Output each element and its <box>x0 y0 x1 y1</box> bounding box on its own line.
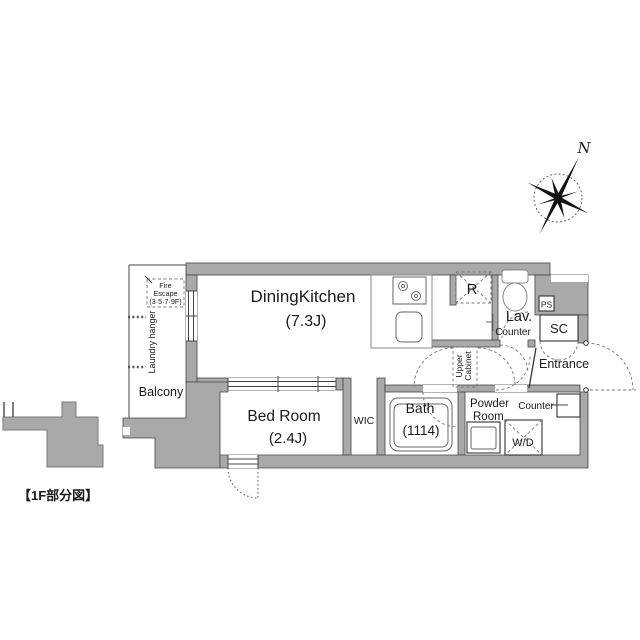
bath-door-gap <box>423 385 457 392</box>
floor-1f-caption: 【1F部分図】 <box>18 488 98 503</box>
washer-dryer-label: W/D <box>512 437 533 449</box>
door-hinge-top <box>584 341 589 346</box>
compass-star <box>528 157 589 234</box>
powder-sink-icon <box>467 422 500 453</box>
bed-ext-door-swing <box>228 468 258 498</box>
dining-kitchen-size: (7.3J) <box>286 313 327 330</box>
wall-hallway <box>385 385 580 392</box>
fire-escape-label-3: (3·5·7·9F) <box>149 297 181 306</box>
powder-counter-label: Counter <box>518 401 554 412</box>
wall-lav-jamb <box>528 340 535 347</box>
lavatory-label: Lav. <box>506 309 532 325</box>
wall-bath-powder <box>458 392 465 455</box>
wic-label: WIC <box>354 415 375 427</box>
wall-wic-right <box>377 378 385 455</box>
compass-icon: N <box>528 139 592 234</box>
fire-escape-leader <box>145 276 152 283</box>
bath-label: Bath <box>406 400 435 416</box>
north-label: N <box>576 139 591 157</box>
bed-room-size: (2.4J) <box>269 430 307 447</box>
floor-1f-shape <box>3 402 103 467</box>
door-hinge-bottom <box>584 388 589 393</box>
pipe-space-label: PS <box>541 300 553 310</box>
balcony-notch <box>123 427 130 435</box>
floorplan-page: DiningKitchen (7.3J) Bed Room (2.4J) WIC… <box>0 0 640 640</box>
wall-step-notch <box>551 275 588 282</box>
laundry-pole-ticks <box>128 317 146 367</box>
refrigerator-label: R <box>467 281 478 298</box>
powder-door-gap <box>495 385 527 392</box>
toilet-icon <box>502 270 528 311</box>
cabinet-swing-left <box>414 348 453 387</box>
laundry-hanger-label: Laundry hanger <box>147 310 157 373</box>
lav-counter-label: Counter <box>495 327 531 338</box>
balcony-label: Balcony <box>139 385 184 399</box>
kitchen <box>371 275 432 348</box>
powder-room-label-1: Powder <box>470 398 509 410</box>
floor-1f-diagram: 【1F部分図】 <box>3 402 103 503</box>
upper-cabinet-label-2: Cabinet <box>463 351 473 381</box>
wall-wic-left <box>343 378 351 455</box>
wall-top <box>186 263 550 275</box>
bed-room-label: Bed Room <box>247 408 320 425</box>
dining-kitchen-label: DiningKitchen <box>251 287 356 306</box>
wall-r-stub <box>450 275 456 305</box>
floor-1f-wall-lines <box>4 402 13 417</box>
entrance-label: Entrance <box>539 357 589 371</box>
cabinet-swing-right <box>478 348 515 385</box>
powder-room-label-2: Room <box>473 411 504 423</box>
floorplan-drawing: DiningKitchen (7.3J) Bed Room (2.4J) WIC… <box>0 0 640 640</box>
shoe-closet-label: SC <box>550 321 568 336</box>
wall-right-upper <box>578 315 588 343</box>
bed-ext-door-gap <box>228 455 258 468</box>
entrance-door-swing <box>586 343 636 390</box>
bed-slider-gap <box>228 378 336 390</box>
bath-size: (1114) <box>402 423 439 438</box>
entrance-step-line <box>529 348 536 388</box>
